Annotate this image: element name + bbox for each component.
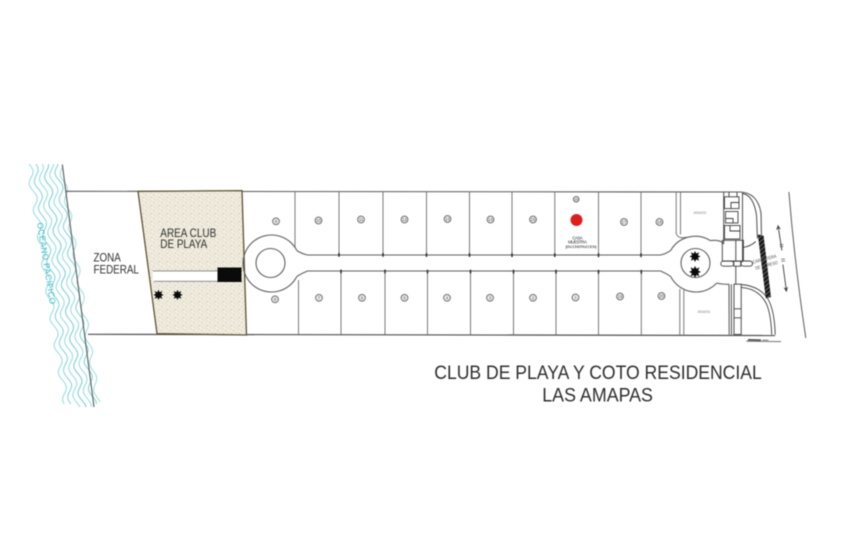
- svg-text:DE PLAYA: DE PLAYA: [160, 239, 207, 251]
- svg-text:FEDERAL: FEDERAL: [94, 265, 140, 277]
- svg-text:AREA VERDE: AREA VERDE: [697, 310, 711, 314]
- svg-text:16: 16: [574, 198, 578, 202]
- svg-text:12: 12: [402, 217, 407, 222]
- svg-text:AREA VERDE: AREA VERDE: [693, 211, 707, 215]
- svg-text:ZONA: ZONA: [94, 253, 122, 265]
- svg-text:15: 15: [531, 217, 536, 222]
- svg-text:19: 19: [618, 294, 623, 299]
- svg-text:18: 18: [657, 220, 662, 225]
- svg-text:13: 13: [445, 217, 450, 222]
- svg-text:17: 17: [622, 220, 627, 225]
- svg-text:10: 10: [316, 218, 321, 223]
- svg-text:14: 14: [488, 217, 493, 222]
- svg-text:11: 11: [359, 217, 364, 222]
- svg-text:(EN CONSTRUCCION): (EN CONSTRUCCION): [566, 245, 598, 249]
- svg-text:MUESTRA: MUESTRA: [568, 240, 587, 245]
- svg-text:20: 20: [659, 294, 664, 299]
- svg-text:CLUB DE PLAYA Y COTO RESIDENCI: CLUB DE PLAYA Y COTO RESIDENCIAL: [434, 362, 762, 384]
- svg-text:LAS AMAPAS: LAS AMAPAS: [542, 385, 653, 407]
